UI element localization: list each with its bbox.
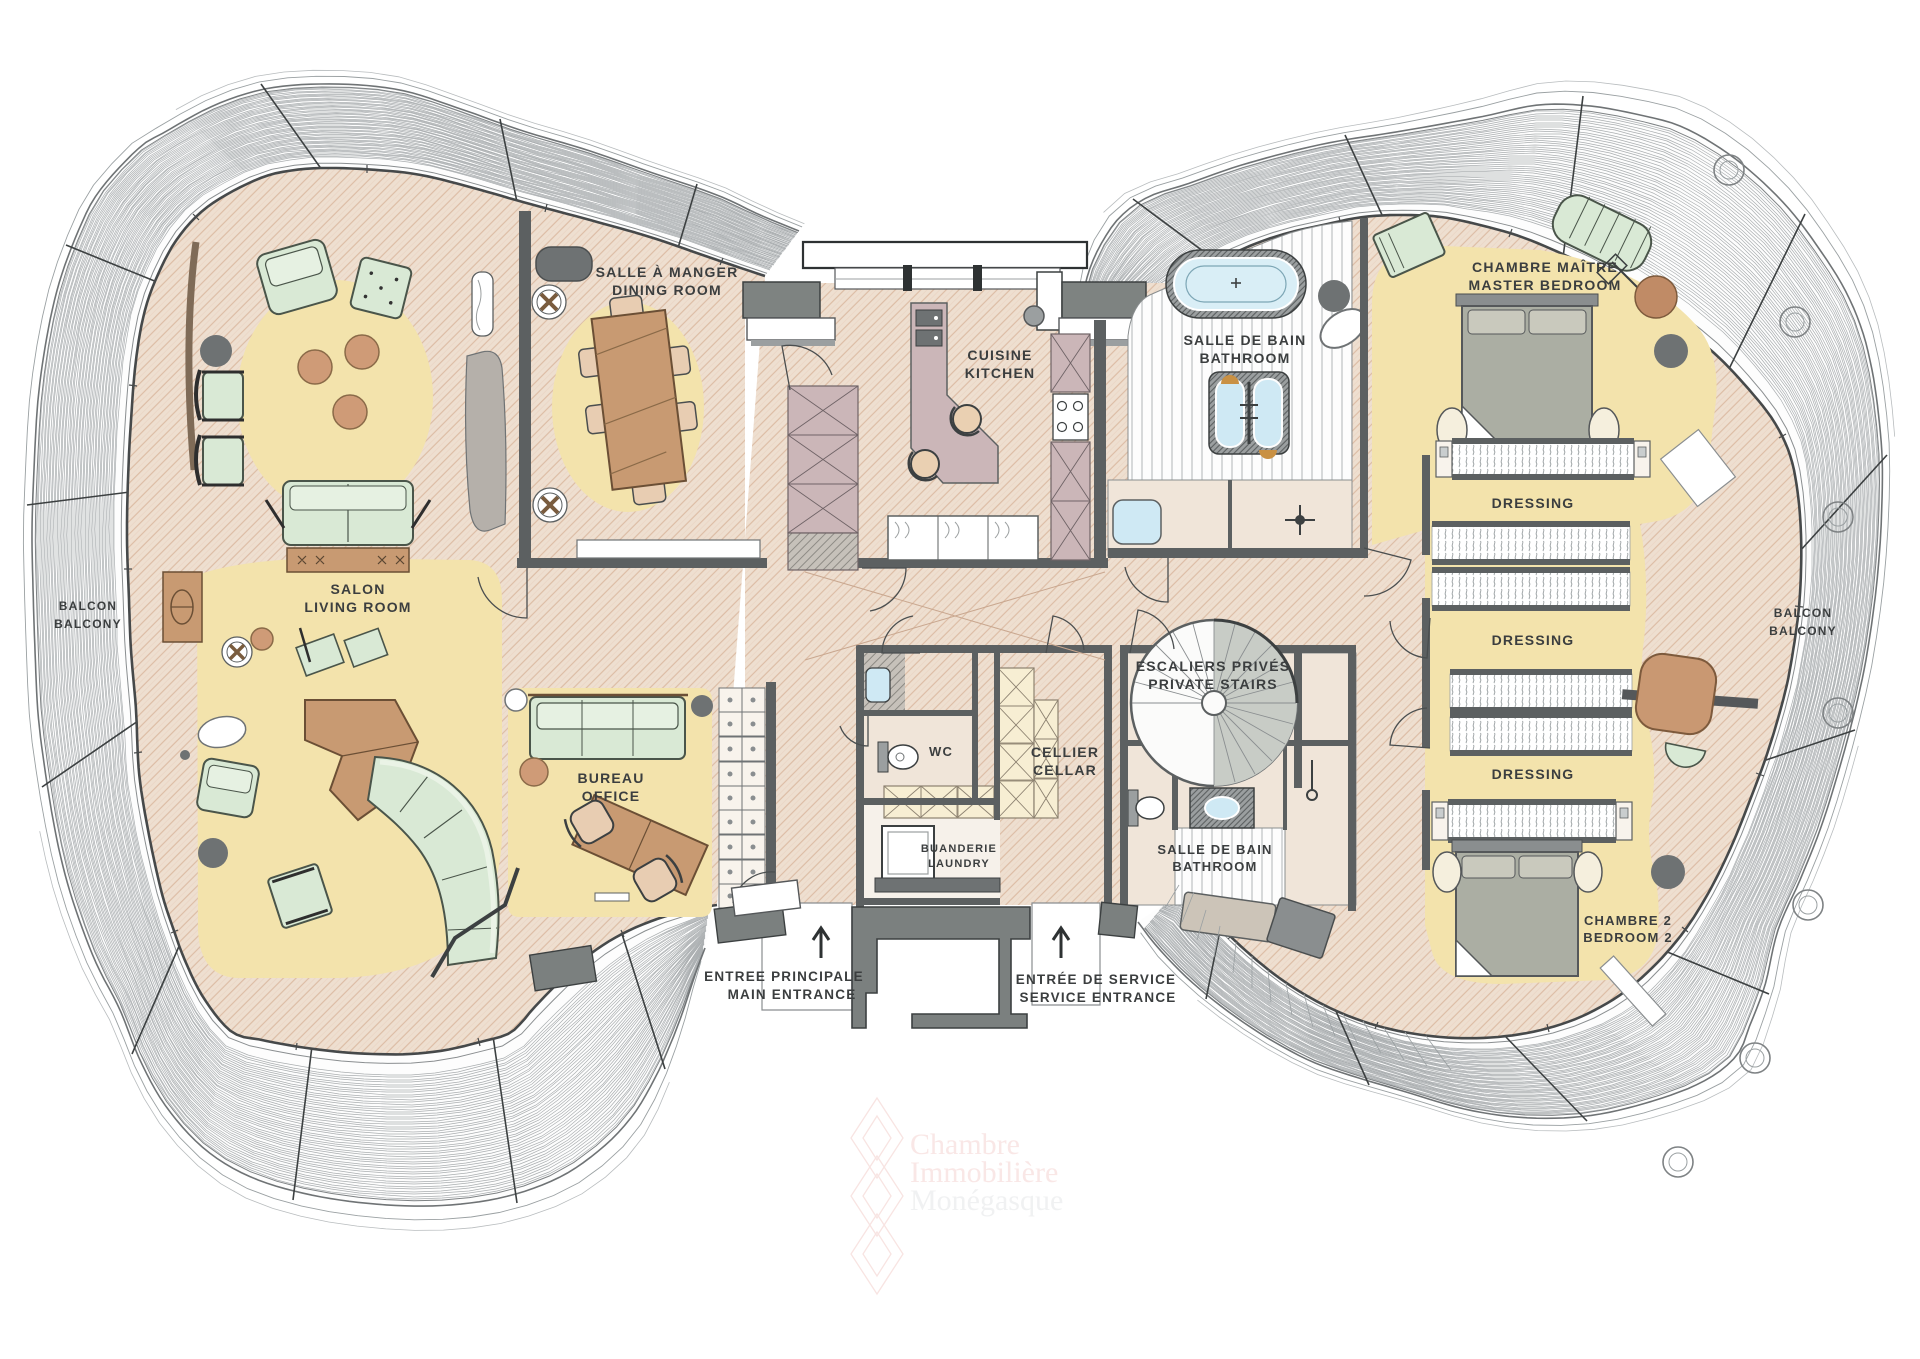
svg-text:BEDROOM 2: BEDROOM 2: [1583, 930, 1673, 945]
svg-text:CUISINE: CUISINE: [967, 347, 1032, 363]
svg-text:BALCONY: BALCONY: [1769, 624, 1837, 638]
svg-text:LIVING ROOM: LIVING ROOM: [304, 599, 411, 615]
svg-text:BATHROOM: BATHROOM: [1172, 859, 1257, 874]
svg-text:Monégasque: Monégasque: [910, 1184, 1063, 1217]
svg-text:DRESSING: DRESSING: [1492, 766, 1575, 782]
svg-text:WC: WC: [929, 744, 953, 759]
svg-text:DINING ROOM: DINING ROOM: [612, 282, 722, 298]
svg-text:BALCON: BALCON: [1774, 606, 1833, 620]
svg-text:ENTREE PRINCIPALE: ENTREE PRINCIPALE: [704, 969, 864, 984]
svg-text:SERVICE ENTRANCE: SERVICE ENTRANCE: [1020, 990, 1177, 1005]
svg-text:PRIVATE STAIRS: PRIVATE STAIRS: [1148, 676, 1278, 692]
svg-text:SALLE DE BAIN: SALLE DE BAIN: [1157, 842, 1272, 857]
svg-text:CHAMBRE MAÎTRE: CHAMBRE MAÎTRE: [1472, 258, 1618, 275]
svg-text:DRESSING: DRESSING: [1492, 495, 1575, 511]
svg-text:BUREAU: BUREAU: [577, 770, 644, 786]
svg-text:BALCONY: BALCONY: [54, 617, 122, 631]
svg-text:CHAMBRE 2: CHAMBRE 2: [1584, 913, 1672, 928]
svg-text:KITCHEN: KITCHEN: [965, 365, 1036, 381]
svg-text:SALON: SALON: [331, 581, 386, 597]
svg-text:LAUNDRY: LAUNDRY: [928, 858, 990, 870]
svg-text:ENTRÉE DE SERVICE: ENTRÉE DE SERVICE: [1016, 972, 1176, 987]
svg-text:BALCON: BALCON: [59, 599, 118, 613]
svg-text:SALLE DE BAIN: SALLE DE BAIN: [1184, 332, 1307, 348]
svg-text:BUANDERIE: BUANDERIE: [921, 843, 997, 855]
svg-text:ESCALIERS PRIVÉS: ESCALIERS PRIVÉS: [1136, 658, 1291, 674]
svg-text:CELLIER: CELLIER: [1031, 744, 1099, 760]
svg-text:DRESSING: DRESSING: [1492, 632, 1575, 648]
svg-text:MASTER BEDROOM: MASTER BEDROOM: [1469, 277, 1622, 293]
svg-text:MAIN ENTRANCE: MAIN ENTRANCE: [728, 987, 857, 1002]
svg-text:OFFICE: OFFICE: [582, 788, 641, 804]
svg-text:CELLAR: CELLAR: [1033, 762, 1097, 778]
svg-text:BATHROOM: BATHROOM: [1200, 350, 1291, 366]
svg-text:SALLE À MANGER: SALLE À MANGER: [596, 264, 739, 280]
